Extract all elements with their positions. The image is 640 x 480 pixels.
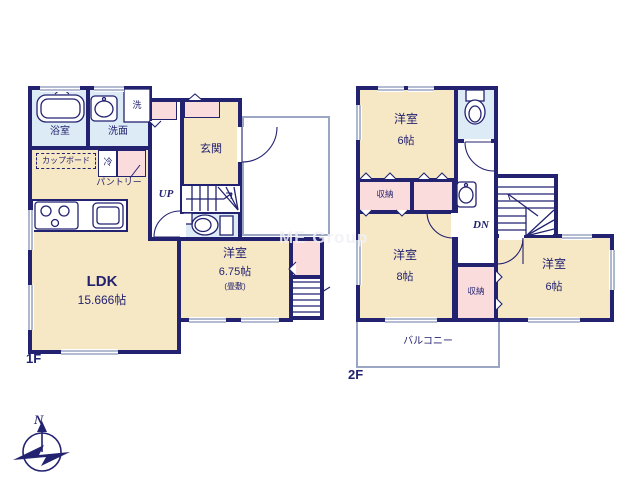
compass-icon: N xyxy=(10,408,74,478)
washroom-label: 洗面 xyxy=(96,126,140,137)
cupboard-label: カップボード xyxy=(38,157,94,166)
storage2-label: 収納 xyxy=(461,287,491,296)
staircase-2f xyxy=(494,174,558,240)
shoe-closet xyxy=(184,101,220,118)
ldk-size-label: 15.666帖 xyxy=(52,294,152,307)
stairs-up-label: UP xyxy=(153,188,179,200)
closet-2f-b xyxy=(410,178,456,214)
fridge-label: 冷 xyxy=(100,158,116,168)
floorplan-canvas: 浴室 洗面 洗 カップボード 冷 パントリー 玄関 UP LDK 15.666帖… xyxy=(0,0,640,480)
bath-label: 浴室 xyxy=(40,126,80,137)
room-bedroom3-2f xyxy=(494,234,614,322)
bedroom3-2f-name-label: 洋室 xyxy=(524,258,584,271)
room-bedroom1-2f xyxy=(356,86,458,182)
entry-steps xyxy=(289,275,324,320)
bedroom-1f-size-label: 6.75帖 xyxy=(202,266,268,278)
room-toilet-2f xyxy=(454,86,498,143)
entrance-porch xyxy=(242,116,330,236)
room-bedroom2-2f xyxy=(356,210,456,322)
bedroom2-2f-size-label: 8帖 xyxy=(385,271,425,283)
bedroom1-2f-name-label: 洋室 xyxy=(376,113,436,126)
room-bath xyxy=(28,86,90,150)
storage1-label: 収納 xyxy=(366,190,404,199)
closet-hall-1f xyxy=(151,101,177,120)
pantry-label: パントリー xyxy=(93,178,145,188)
ldk-name-label: LDK xyxy=(60,274,144,291)
kitchen-counter xyxy=(31,199,128,232)
hallway-2f xyxy=(454,139,498,267)
entrance-label: 玄関 xyxy=(186,143,236,155)
watermark: ME Group xyxy=(279,228,368,248)
balcony-label: バルコニー xyxy=(392,336,464,347)
stairs-down-label: DN xyxy=(468,219,494,231)
pantry-closet xyxy=(117,150,146,177)
bedroom-1f-note-label: (畳敷) xyxy=(210,283,260,292)
room-washroom xyxy=(86,86,152,150)
bedroom2-2f-name-label: 洋室 xyxy=(375,249,435,262)
bedroom-1f-name-label: 洋室 xyxy=(205,247,265,260)
compass-north-label: N xyxy=(33,412,44,427)
bedroom3-2f-size-label: 6帖 xyxy=(534,281,574,293)
washer-label: 洗 xyxy=(130,101,144,111)
floor2-label: 2F xyxy=(348,368,378,382)
bedroom1-2f-size-label: 6帖 xyxy=(386,135,426,147)
floor1-label: 1F xyxy=(26,352,56,366)
